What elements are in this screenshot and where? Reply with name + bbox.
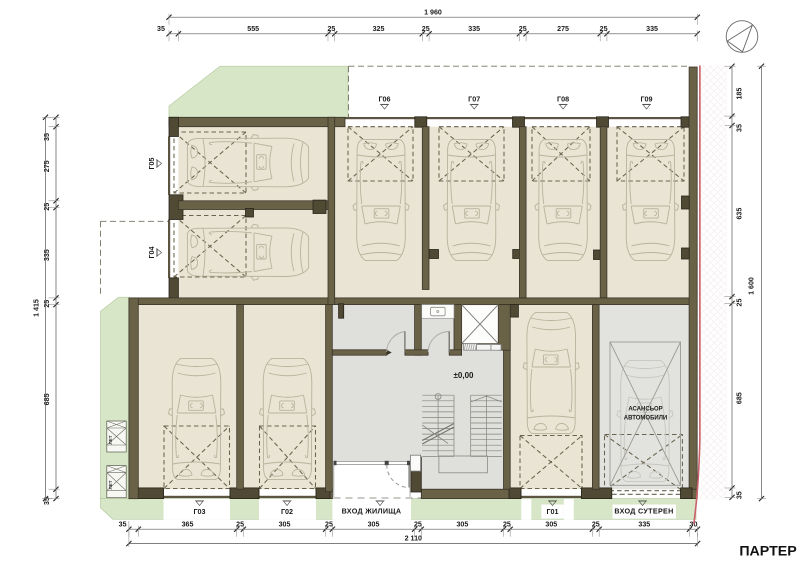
svg-text:275: 275	[43, 160, 51, 172]
svg-text:305: 305	[368, 520, 380, 528]
svg-text:25: 25	[592, 520, 600, 528]
svg-text:1 600: 1 600	[748, 277, 756, 295]
svg-text:35: 35	[43, 133, 51, 141]
svg-text:35: 35	[736, 491, 744, 499]
svg-text:25: 25	[422, 25, 430, 33]
svg-text:335: 335	[468, 25, 480, 33]
svg-text:АВТОМОБИЛИ: АВТОМОБИЛИ	[624, 416, 667, 422]
svg-text:ВХОД ЖИЛИЩА: ВХОД ЖИЛИЩА	[342, 507, 402, 516]
svg-text:Г09: Г09	[640, 95, 652, 104]
svg-text:35: 35	[736, 124, 744, 132]
svg-text:Г02: Г02	[281, 507, 293, 516]
svg-text:35: 35	[157, 25, 165, 33]
svg-text:25: 25	[414, 520, 422, 528]
svg-text:25: 25	[236, 520, 244, 528]
svg-text:635: 635	[736, 208, 744, 220]
svg-text:275: 275	[557, 25, 569, 33]
svg-text:АСАНСЬОР: АСАНСЬОР	[628, 407, 662, 413]
svg-text:365: 365	[182, 520, 194, 528]
svg-text:685: 685	[43, 393, 51, 405]
svg-text:25: 25	[325, 520, 333, 528]
svg-text:35: 35	[43, 497, 51, 505]
svg-text:25: 25	[519, 25, 527, 33]
svg-text:185: 185	[736, 88, 744, 100]
svg-text:Г06: Г06	[378, 95, 390, 104]
svg-text:25: 25	[43, 203, 51, 211]
svg-text:1 960: 1 960	[424, 8, 442, 16]
svg-text:1 415: 1 415	[33, 299, 41, 317]
svg-text:2 110: 2 110	[405, 535, 422, 543]
svg-text:ПАРТЕР: ПАРТЕР	[739, 544, 796, 560]
svg-text:ЛЕТ: ЛЕТ	[108, 435, 113, 444]
svg-text:25: 25	[736, 299, 744, 307]
svg-text:±0,00: ±0,00	[454, 371, 475, 380]
svg-text:305: 305	[545, 520, 557, 528]
svg-text:335: 335	[646, 25, 658, 33]
svg-text:305: 305	[279, 520, 291, 528]
svg-text:25: 25	[503, 520, 511, 528]
svg-text:685: 685	[736, 392, 744, 404]
svg-text:Г05: Г05	[147, 157, 156, 169]
svg-text:Г08: Г08	[557, 95, 569, 104]
svg-text:Г01: Г01	[546, 507, 558, 516]
svg-text:335: 335	[638, 520, 650, 528]
svg-text:Г07: Г07	[468, 95, 480, 104]
svg-text:325: 325	[373, 25, 385, 33]
svg-text:Г03: Г03	[193, 507, 205, 516]
svg-text:ВХОД СУТЕРЕН: ВХОД СУТЕРЕН	[614, 507, 673, 516]
svg-text:555: 555	[247, 25, 259, 33]
svg-text:25: 25	[327, 25, 335, 33]
svg-text:25: 25	[43, 300, 51, 308]
svg-text:25: 25	[600, 25, 608, 33]
svg-text:35: 35	[119, 520, 127, 528]
svg-text:ЛЕТ: ЛЕТ	[108, 480, 113, 489]
svg-text:335: 335	[43, 249, 51, 261]
svg-text:Г04: Г04	[147, 246, 156, 258]
svg-text:305: 305	[456, 520, 468, 528]
